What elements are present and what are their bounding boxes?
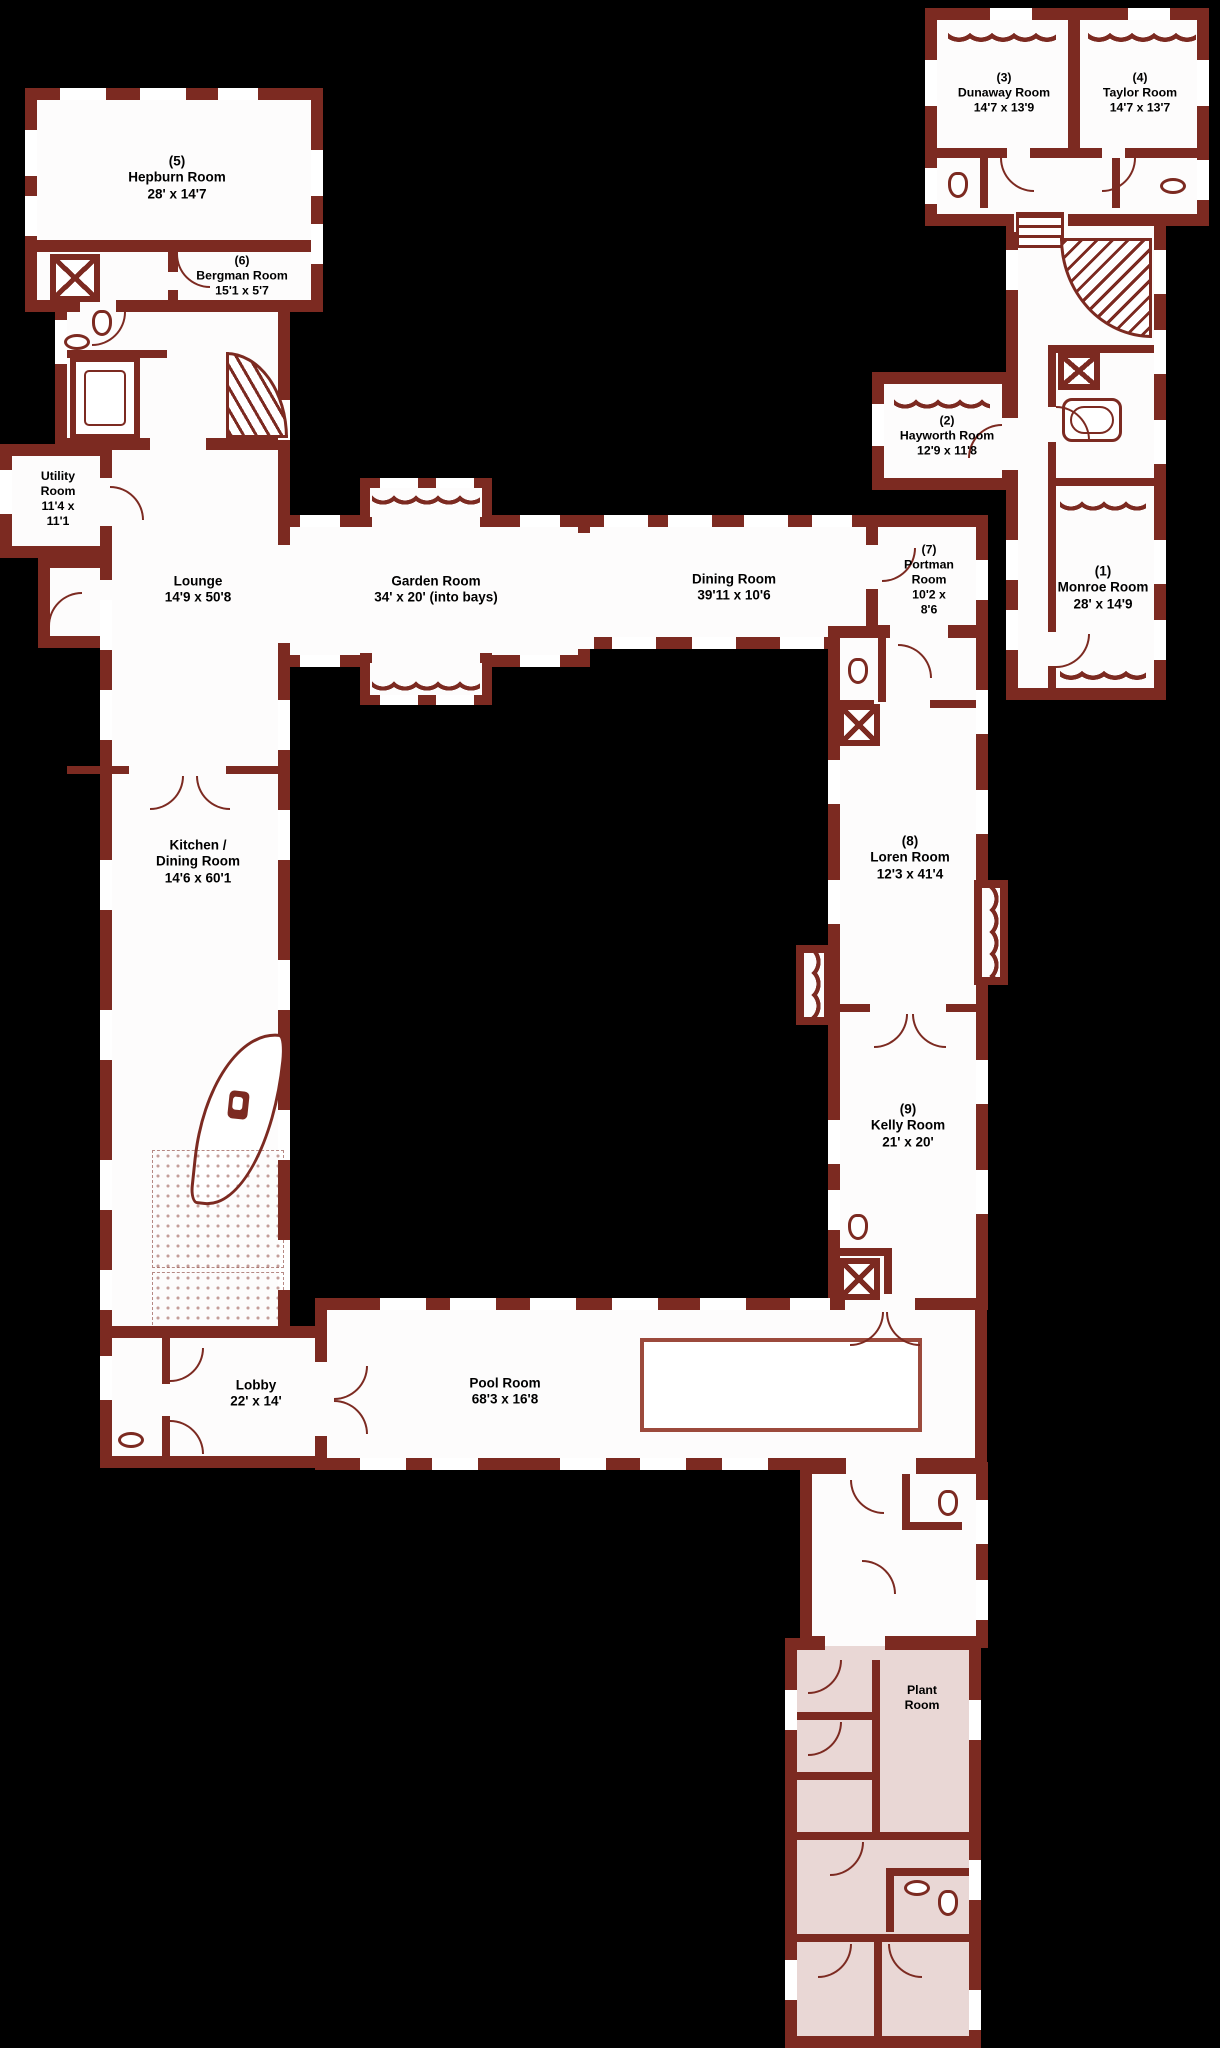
wall: [980, 158, 988, 208]
wall: [797, 1832, 973, 1840]
window: [976, 690, 988, 734]
floor-plan: (5) Hepburn Room 28' x 14'7 (6) Bergman …: [0, 0, 1220, 2048]
wall: [874, 1942, 882, 2036]
window: [969, 1700, 981, 1740]
bay-curtain: [894, 390, 990, 414]
window: [278, 810, 290, 860]
wall: [902, 1474, 910, 1528]
wall: [1048, 345, 1056, 407]
bay-curtain: [372, 486, 480, 510]
bay-curtain: [1060, 492, 1146, 516]
window: [520, 515, 560, 527]
window: [976, 1500, 988, 1544]
wall: [1048, 442, 1056, 486]
window: [1197, 160, 1209, 200]
wall: [840, 1004, 870, 1012]
window: [976, 560, 988, 600]
window: [60, 88, 106, 100]
toilet-icon: [938, 1890, 958, 1916]
toilet-icon: [938, 1490, 958, 1516]
window: [925, 168, 937, 204]
wall: [162, 1416, 170, 1458]
window: [976, 1170, 988, 1214]
wall: [902, 1522, 962, 1530]
window: [925, 60, 937, 106]
window: [668, 515, 712, 527]
toilet-icon: [948, 172, 968, 198]
wall: [1068, 20, 1080, 148]
wall: [226, 766, 278, 774]
staircase: [1016, 212, 1064, 248]
window: [612, 1298, 658, 1310]
window: [311, 224, 323, 264]
window: [360, 1458, 406, 1470]
window: [380, 695, 418, 705]
shaft-x-icon: [838, 704, 880, 746]
wall: [162, 1338, 170, 1384]
window: [640, 1458, 686, 1470]
shaft-x-icon: [50, 254, 100, 302]
window: [380, 1298, 426, 1310]
wall: [886, 1874, 894, 1932]
window: [872, 404, 884, 446]
room-plant-wing: [785, 1638, 981, 2048]
bay-curtain: [980, 888, 1004, 978]
bay-curtain: [372, 672, 480, 696]
sink-icon: [1160, 178, 1186, 194]
wall: [1048, 486, 1056, 632]
window: [450, 1298, 496, 1310]
toilet-icon: [848, 1214, 868, 1240]
window: [100, 1356, 112, 1400]
window: [1006, 250, 1018, 290]
bay-curtain: [802, 951, 826, 1019]
lightwell: [70, 356, 140, 440]
wall: [1030, 148, 1102, 158]
window: [744, 515, 788, 527]
window: [100, 1270, 112, 1310]
room-label-utility: Utility Room 11'4 x 11'1: [41, 469, 76, 529]
window: [812, 515, 852, 527]
room-label-monroe: (1) Monroe Room 28' x 14'9: [1058, 563, 1149, 612]
opening: [372, 653, 480, 669]
window: [25, 130, 37, 176]
opening: [372, 511, 480, 529]
room-label-hayworth: (2) Hayworth Room 12'9 x 11'8: [900, 414, 994, 459]
room-label-lounge: Lounge 14'9 x 50'8: [165, 574, 231, 607]
window: [278, 700, 290, 750]
window: [700, 1298, 746, 1310]
window: [100, 1010, 112, 1060]
opening: [825, 1630, 885, 1646]
sink-icon: [904, 1880, 930, 1896]
bay-curtain: [1088, 22, 1196, 48]
window: [604, 515, 648, 527]
toilet-icon: [848, 658, 868, 684]
window: [780, 637, 824, 649]
wall: [797, 1772, 875, 1780]
opening: [825, 1646, 885, 1660]
room-label-dining: Dining Room 39'11 x 10'6: [692, 572, 776, 605]
sink-icon: [227, 1090, 250, 1120]
wall: [37, 240, 311, 252]
window: [692, 637, 736, 649]
window: [990, 8, 1032, 20]
window: [436, 695, 474, 705]
room-label-dunaway: (3) Dunaway Room 14'7 x 13'9: [958, 71, 1050, 116]
window: [828, 1190, 840, 1230]
room-label-kitchen: Kitchen / Dining Room 14'6 x 60'1: [156, 837, 240, 886]
window: [100, 690, 112, 740]
window: [828, 760, 840, 804]
window: [300, 515, 340, 527]
window: [828, 1120, 840, 1164]
wall: [886, 1868, 972, 1876]
shaft-x-icon: [1058, 352, 1100, 390]
window: [0, 470, 12, 514]
window: [311, 150, 323, 196]
wall: [946, 1004, 976, 1012]
wall: [797, 1712, 875, 1720]
room-connector: [800, 1462, 988, 1648]
window: [828, 880, 840, 924]
opening: [890, 620, 948, 642]
opening: [312, 1362, 334, 1436]
window: [100, 1160, 112, 1210]
room-label-kelly: (9) Kelly Room 21' x 20': [871, 1101, 945, 1150]
opening: [166, 272, 180, 290]
window: [218, 88, 258, 100]
window: [969, 1860, 981, 1900]
window: [100, 600, 112, 650]
window: [785, 1960, 797, 2000]
window: [722, 1458, 768, 1470]
wall: [1125, 148, 1197, 158]
window: [1006, 540, 1018, 580]
room-label-taylor: (4) Taylor Room 14'7 x 13'7: [1103, 71, 1177, 116]
window: [520, 655, 560, 667]
wall: [797, 1934, 973, 1942]
window: [790, 1298, 830, 1310]
window: [1154, 250, 1166, 294]
room-label-hepburn: (5) Hepburn Room 28' x 14'7: [128, 153, 226, 202]
kitchen-floor-texture: [152, 1150, 284, 1268]
window: [278, 960, 290, 1010]
window: [976, 790, 988, 834]
opening: [864, 545, 882, 589]
swimming-pool: [640, 1338, 922, 1432]
window: [100, 860, 112, 910]
wall: [930, 700, 976, 708]
room-label-garden: Garden Room 34' x 20' (into bays): [374, 574, 497, 607]
wall: [1048, 478, 1154, 486]
room-label-plant: Plant Room: [905, 1683, 940, 1713]
opening: [150, 434, 206, 454]
opening: [1002, 418, 1020, 470]
kitchen-floor-texture: [152, 1272, 284, 1330]
opening: [846, 1456, 916, 1474]
room-label-loren: (8) Loren Room 12'3 x 41'4: [870, 833, 950, 882]
window: [530, 1298, 576, 1310]
shaft-x-icon: [838, 1258, 880, 1300]
window: [785, 1690, 797, 1730]
wall: [937, 148, 1007, 158]
wall: [1048, 666, 1056, 688]
wall: [872, 1650, 880, 1834]
window: [1154, 620, 1166, 660]
wall: [840, 1248, 884, 1256]
wall: [878, 638, 886, 702]
opening: [274, 545, 296, 643]
room-label-pool: Pool Room 68'3 x 16'8: [469, 1376, 540, 1409]
window: [612, 637, 656, 649]
wall: [67, 766, 129, 774]
room-label-bergman: (6) Bergman Room 15'1 x 5'7: [196, 254, 288, 299]
sink-icon: [64, 334, 90, 350]
window: [1128, 8, 1170, 20]
window: [25, 196, 37, 236]
bay-curtain: [1060, 660, 1146, 686]
window: [140, 88, 186, 100]
window: [300, 655, 340, 667]
sink-icon: [118, 1432, 144, 1448]
window: [1006, 610, 1018, 650]
window: [976, 1060, 988, 1104]
window: [560, 1458, 606, 1470]
window: [1154, 540, 1166, 584]
bay-curtain: [948, 22, 1056, 48]
room-label-portman: (7) Portman Room 10'2 x 8'6: [904, 543, 954, 618]
window: [969, 1990, 981, 2030]
window: [1154, 330, 1166, 374]
opening: [574, 533, 594, 649]
window: [1197, 60, 1209, 106]
window: [432, 1458, 478, 1470]
window: [976, 1580, 988, 1620]
window: [1154, 420, 1166, 464]
room-label-lobby: Lobby 22' x 14': [230, 1378, 281, 1411]
